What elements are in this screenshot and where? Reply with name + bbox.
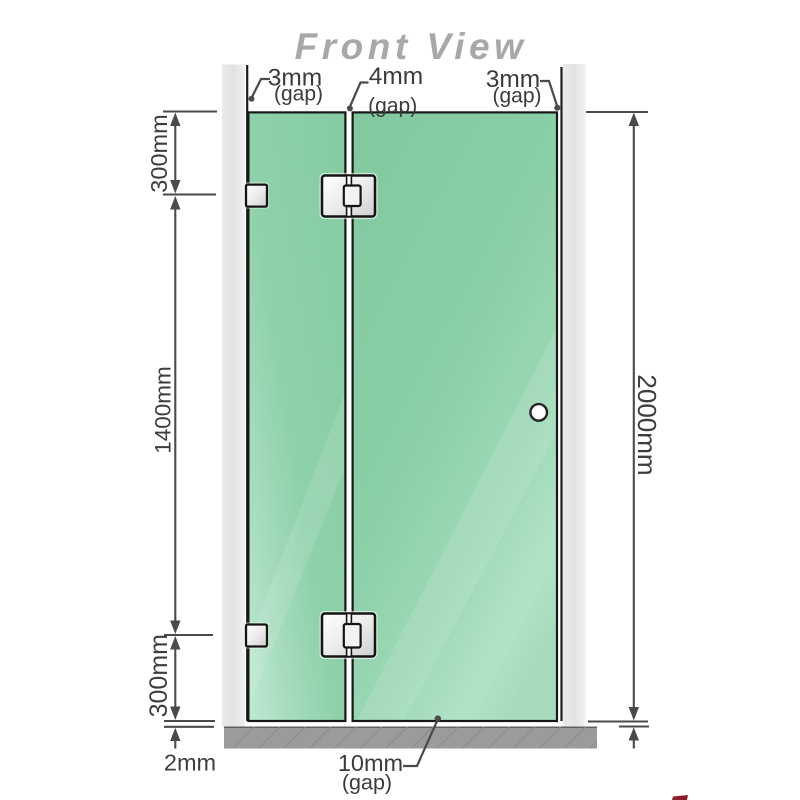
svg-text:4mm: 4mm <box>369 63 423 90</box>
svg-text:(gap): (gap) <box>274 83 323 106</box>
svg-text:(gap): (gap) <box>342 771 392 795</box>
svg-text:1400mm: 1400mm <box>151 366 176 454</box>
svg-text:Front View: Front View <box>295 26 528 67</box>
svg-text:(gap): (gap) <box>368 95 417 118</box>
svg-text:2mm: 2mm <box>164 750 216 776</box>
svg-text:300mm: 300mm <box>145 634 173 717</box>
svg-text:2000mm: 2000mm <box>632 374 662 475</box>
svg-text:300mm: 300mm <box>146 114 172 192</box>
svg-text:(gap): (gap) <box>492 85 541 108</box>
